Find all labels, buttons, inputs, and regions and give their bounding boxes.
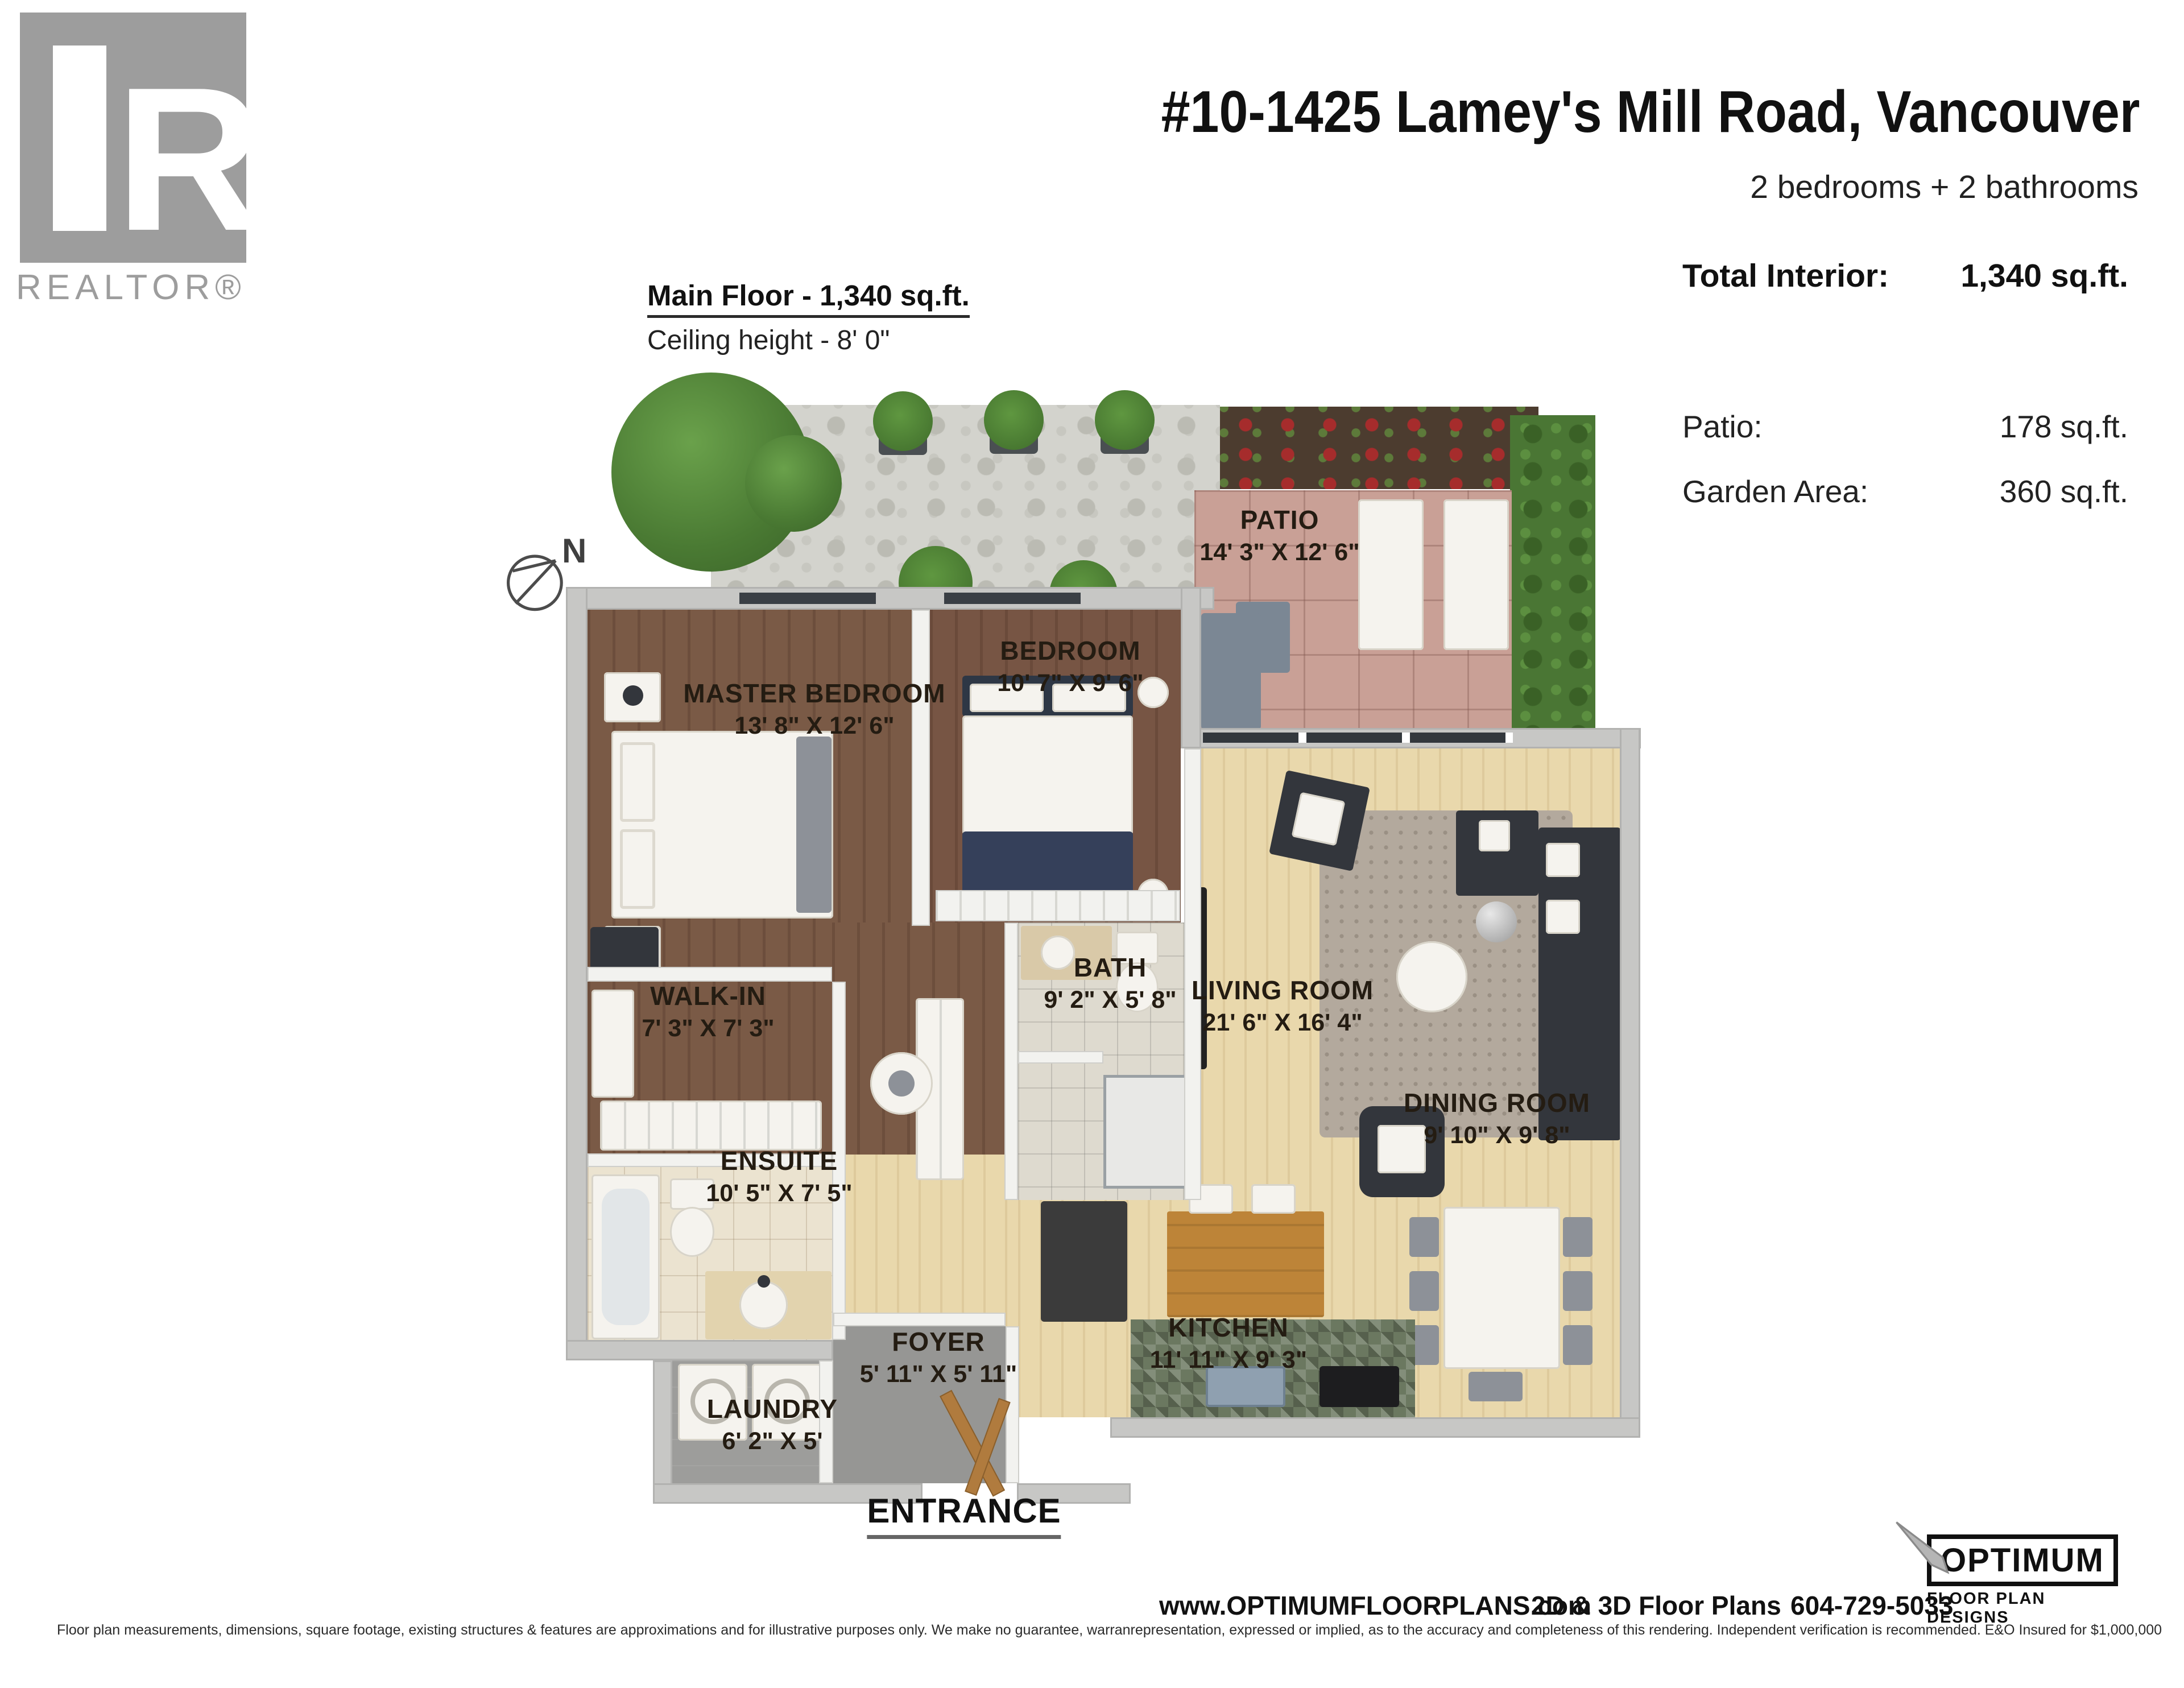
page-title: #10-1425 Lamey's Mill Road, Vancouver xyxy=(1161,78,2140,146)
stat-garden-area: Garden Area: 360 sq.ft. xyxy=(1682,473,2128,510)
fridge-cabinet xyxy=(1041,1201,1127,1322)
svg-text:R: R xyxy=(115,45,246,266)
exterior-wall xyxy=(1620,728,1640,1438)
lounge-chair xyxy=(1358,499,1424,650)
footer-website: www.OPTIMUMFLOORPLANS.com xyxy=(1159,1590,1591,1621)
exterior-wall xyxy=(566,587,588,1360)
pillow xyxy=(620,829,655,909)
dining-chair xyxy=(1563,1271,1592,1311)
bed-blanket xyxy=(962,831,1133,895)
footer-services: 2D & 3D Floor Plans xyxy=(1531,1590,1781,1621)
room-label-foyer: FOYER5' 11" X 5' 11" xyxy=(860,1325,1017,1390)
sliding-glass-door xyxy=(1203,733,1513,743)
coffee-table xyxy=(1396,941,1467,1012)
lounge-chair xyxy=(1443,499,1509,650)
interior-wall xyxy=(912,610,930,926)
potted-plant xyxy=(1095,390,1155,450)
patio-door-glass xyxy=(1201,613,1261,730)
floor-plan-page: R REALTOR® #10-1425 Lamey's Mill Road, V… xyxy=(0,0,2184,1688)
sink xyxy=(739,1281,788,1329)
shower xyxy=(1103,1075,1194,1189)
cushion xyxy=(1292,792,1346,846)
cushion xyxy=(1479,820,1510,851)
ceiling-height: Ceiling height - 8' 0" xyxy=(647,325,970,356)
lamp xyxy=(623,685,643,706)
exterior-wall xyxy=(566,587,1214,610)
dining-chair xyxy=(1469,1372,1523,1401)
bar-stool xyxy=(1251,1184,1296,1214)
stat-value: 178 sq.ft. xyxy=(2000,408,2128,445)
room-label-walk-in: WALK-IN7' 3" X 7' 3" xyxy=(642,979,774,1044)
disclaimer-text: Floor plan measurements, dimensions, squ… xyxy=(57,1622,2138,1639)
dining-chair xyxy=(1563,1217,1592,1257)
room-label-kitchen: KITCHEN11' 11" X 9' 3" xyxy=(1150,1311,1307,1376)
dining-chair xyxy=(1409,1217,1439,1257)
tree xyxy=(745,435,842,532)
faucet xyxy=(758,1275,770,1288)
flower-bed xyxy=(1220,407,1538,489)
bath-partition-wall xyxy=(1018,1051,1103,1064)
window xyxy=(944,593,1081,604)
exterior-wall xyxy=(566,1340,833,1360)
room-label-ensuite: ENSUITE10' 5" X 7' 5" xyxy=(706,1144,852,1209)
stat-label: Patio: xyxy=(1682,408,1763,445)
room-label-bedroom: BEDROOM10' 7" X 9' 6" xyxy=(997,634,1143,699)
pillow xyxy=(620,742,655,822)
water-tank-lid xyxy=(888,1070,915,1097)
kitchen-island xyxy=(1167,1211,1324,1317)
hedge xyxy=(1510,415,1595,737)
room-label-bath: BATH9' 2" X 5' 8" xyxy=(1044,951,1176,1016)
dining-chair xyxy=(1409,1271,1439,1311)
cooktop xyxy=(1319,1366,1399,1407)
dining-chair xyxy=(1563,1325,1592,1365)
optimum-logo: OPTIMUM FLOOR PLAN DESIGNS xyxy=(1927,1534,2120,1627)
potted-plant xyxy=(984,390,1044,450)
realtor-logo-text: REALTOR® xyxy=(16,267,246,308)
stat-value: 1,340 sq.ft. xyxy=(1960,257,2128,295)
toilet-bowl xyxy=(670,1207,714,1257)
stat-patio: Patio: 178 sq.ft. xyxy=(1682,408,2128,445)
closet-shelves xyxy=(600,1100,822,1151)
exterior-wall xyxy=(653,1360,672,1504)
pencil-icon xyxy=(1894,1519,1956,1581)
hall-floor xyxy=(832,1155,1018,1326)
room-label-living-room: LIVING ROOM21' 6" X 16' 4" xyxy=(1192,974,1374,1039)
room-label-master-bedroom: MASTER BEDROOM13' 8" X 12' 6" xyxy=(683,677,945,742)
exterior-wall xyxy=(1181,587,1201,748)
exterior-wall xyxy=(1110,1417,1640,1438)
bed-throw xyxy=(796,737,832,913)
bathtub-basin xyxy=(602,1189,650,1325)
cushion xyxy=(1546,900,1580,934)
dining-table xyxy=(1443,1207,1560,1369)
stat-label: Garden Area: xyxy=(1682,473,1868,510)
stat-total-interior: Total Interior: 1,340 sq.ft. xyxy=(1682,257,2128,295)
floor-lamp xyxy=(1476,901,1517,942)
potted-plant xyxy=(873,391,933,451)
room-label-dining-room: DINING ROOM9' 10" X 9' 8" xyxy=(1404,1086,1590,1151)
page-subtitle: 2 bedrooms + 2 bathrooms xyxy=(1750,168,2138,206)
interior-wall xyxy=(833,1313,1006,1326)
floor-title: Main Floor - 1,340 sq.ft. xyxy=(647,279,970,318)
realtor-logo: R xyxy=(20,13,246,266)
floor-info: Main Floor - 1,340 sq.ft. Ceiling height… xyxy=(647,279,970,356)
closet-doors xyxy=(936,890,1180,921)
window xyxy=(739,593,876,604)
stat-value: 360 sq.ft. xyxy=(2000,473,2128,510)
closet-shelves xyxy=(591,990,634,1098)
compass-north-label: N xyxy=(562,531,586,570)
entrance-label: ENTRANCE xyxy=(867,1491,1061,1539)
room-label-patio: PATIO14' 3" X 12' 6" xyxy=(1199,503,1359,568)
stat-label: Total Interior: xyxy=(1682,257,1889,295)
interior-wall xyxy=(1004,922,1018,1200)
room-label-laundry: LAUNDRY6' 2" X 5' xyxy=(707,1392,838,1457)
cushion xyxy=(1546,843,1580,877)
bed xyxy=(962,715,1133,835)
